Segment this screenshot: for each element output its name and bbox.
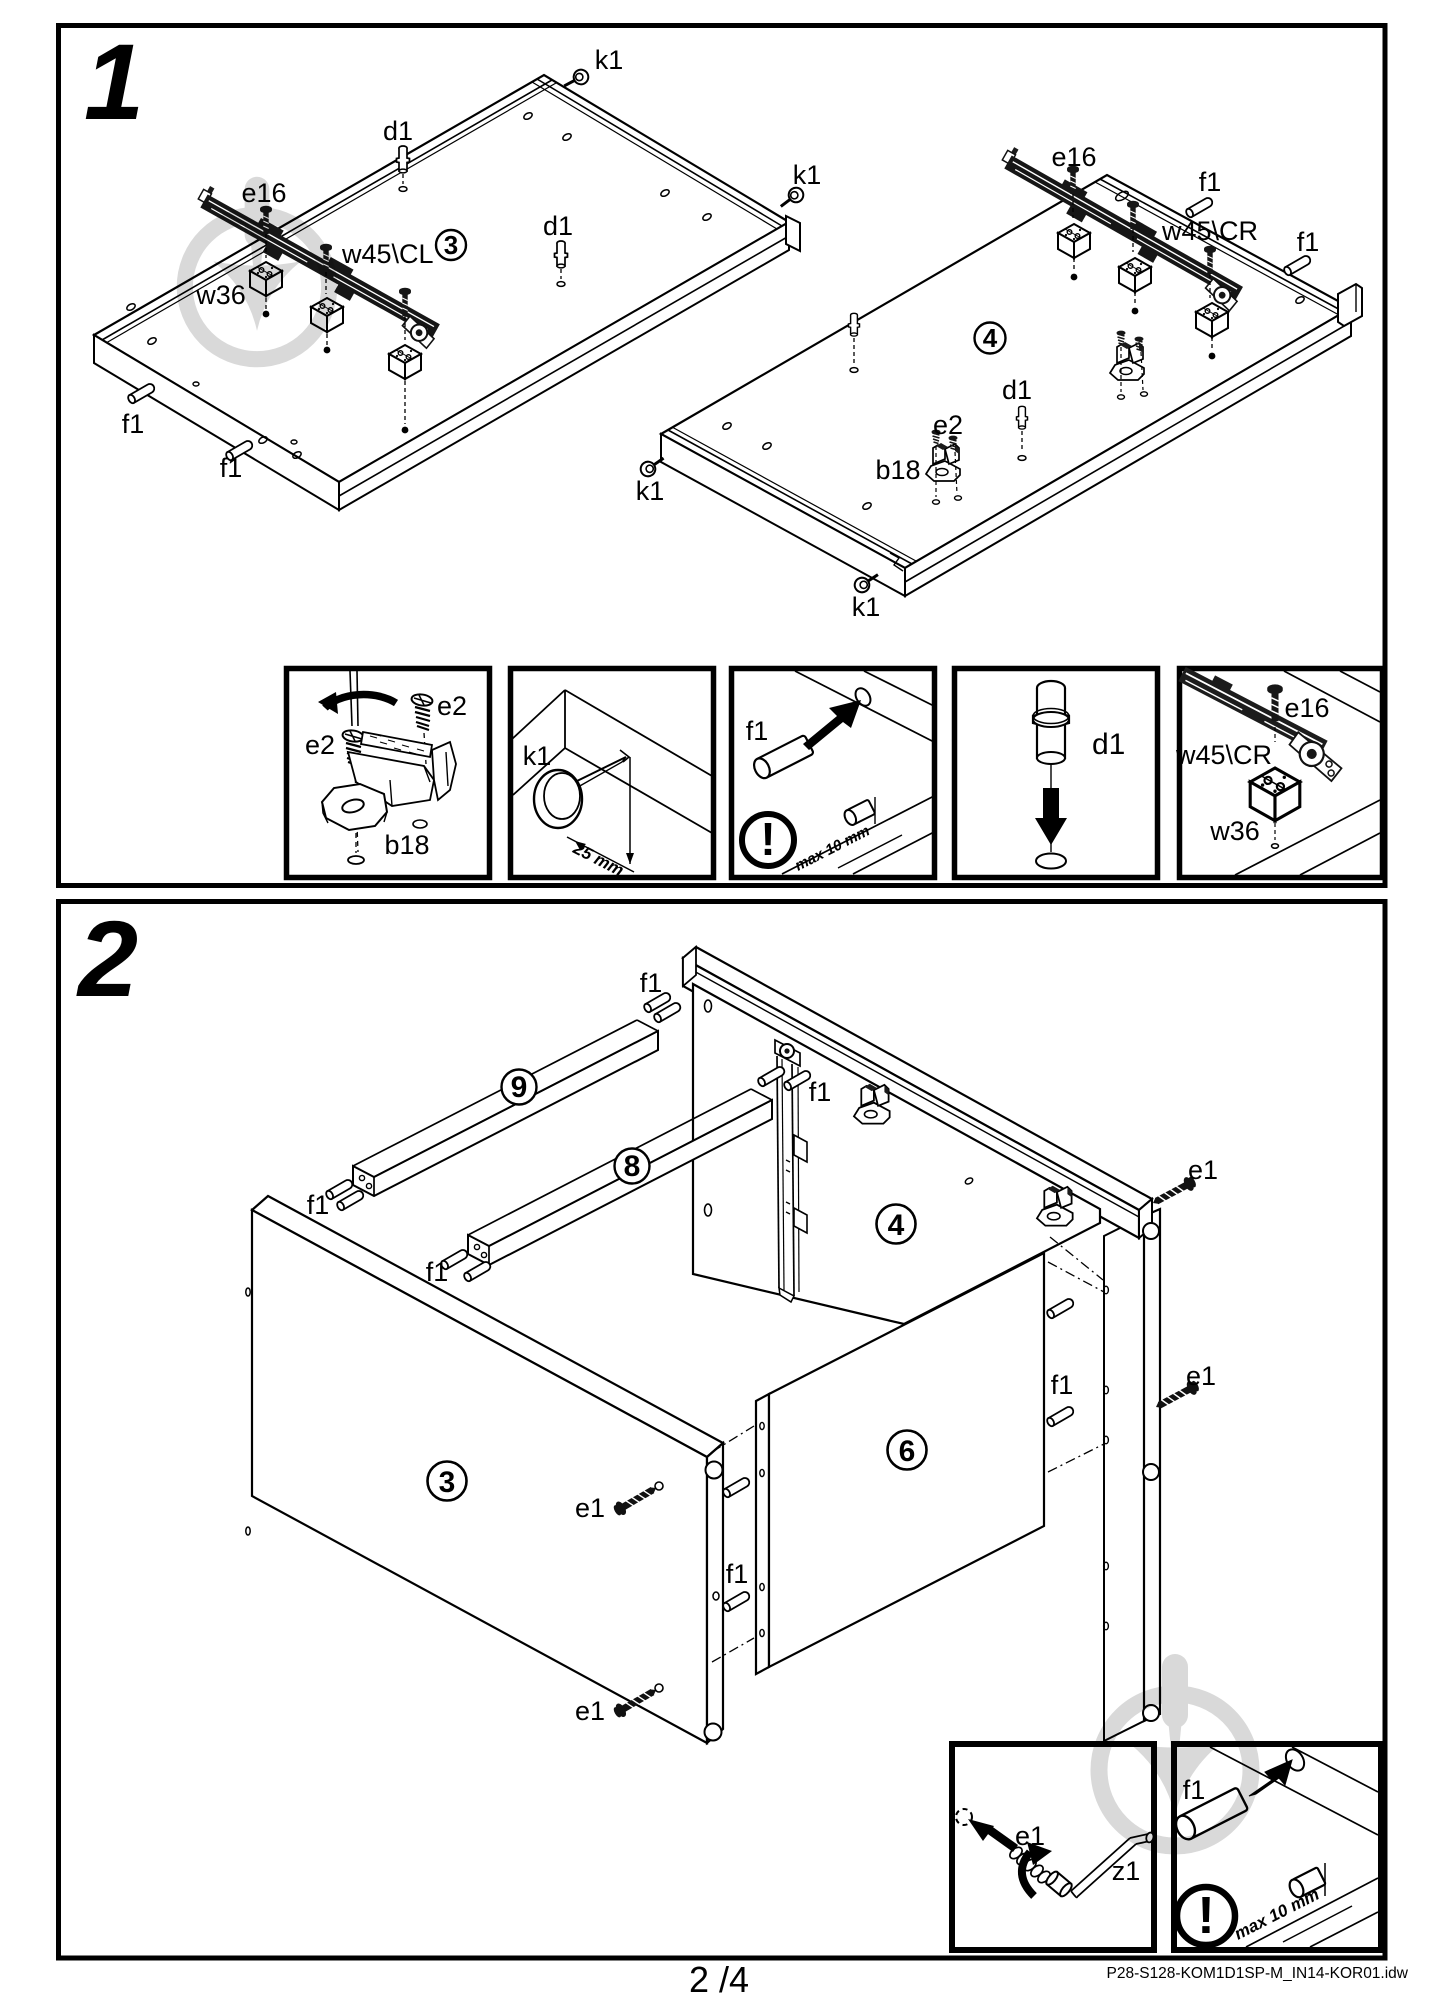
- svg-text:2 /4: 2 /4: [689, 1959, 749, 2000]
- svg-text:e2: e2: [437, 691, 467, 721]
- svg-text:2: 2: [76, 898, 138, 1019]
- svg-text:9: 9: [511, 1071, 528, 1104]
- svg-text:e1: e1: [1186, 1361, 1216, 1391]
- svg-text:!: !: [760, 813, 775, 865]
- svg-text:f1: f1: [1297, 227, 1320, 257]
- svg-text:f1: f1: [307, 1190, 330, 1220]
- svg-text:w36: w36: [1209, 816, 1260, 846]
- svg-text:f1: f1: [640, 968, 663, 998]
- svg-text:e1: e1: [1188, 1155, 1218, 1185]
- svg-text:e2: e2: [933, 410, 963, 440]
- svg-text:8: 8: [624, 1150, 641, 1183]
- svg-text:k1: k1: [793, 160, 822, 190]
- svg-text:d1: d1: [1092, 728, 1125, 761]
- svg-text:d1: d1: [543, 211, 573, 241]
- svg-text:1: 1: [84, 21, 144, 142]
- svg-text:e16: e16: [1284, 693, 1329, 723]
- svg-text:w45\CR: w45\CR: [1161, 216, 1258, 246]
- svg-text:!: !: [1197, 1887, 1214, 1945]
- svg-text:k1: k1: [852, 592, 881, 622]
- svg-text:f1: f1: [726, 1559, 749, 1589]
- svg-text:4: 4: [983, 323, 998, 353]
- svg-text:f1: f1: [746, 716, 769, 746]
- svg-text:3: 3: [439, 1466, 456, 1499]
- svg-text:e16: e16: [1051, 142, 1096, 172]
- svg-text:k1: k1: [595, 45, 624, 75]
- svg-text:e1: e1: [575, 1696, 605, 1726]
- svg-text:b18: b18: [384, 830, 429, 860]
- svg-text:k1: k1: [636, 476, 665, 506]
- svg-text:4: 4: [888, 1209, 905, 1242]
- svg-text:e1: e1: [575, 1493, 605, 1523]
- svg-text:d1: d1: [1002, 375, 1032, 405]
- svg-text:f1: f1: [122, 409, 145, 439]
- svg-text:e1: e1: [1015, 1821, 1045, 1851]
- svg-text:w45\CR: w45\CR: [1175, 740, 1272, 770]
- svg-text:k1: k1: [523, 741, 552, 771]
- svg-text:f1: f1: [809, 1077, 832, 1107]
- svg-text:f1: f1: [220, 453, 243, 483]
- svg-text:f1: f1: [1199, 167, 1222, 197]
- svg-text:b18: b18: [875, 455, 920, 485]
- svg-text:6: 6: [899, 1435, 916, 1468]
- svg-text:P28-S128-KOM1D1SP-M_IN14-KOR01: P28-S128-KOM1D1SP-M_IN14-KOR01.idw: [1106, 1965, 1408, 1982]
- svg-text:z1: z1: [1112, 1856, 1141, 1886]
- svg-text:3: 3: [444, 230, 458, 260]
- svg-text:e2: e2: [305, 730, 335, 760]
- svg-text:d1: d1: [383, 116, 413, 146]
- svg-text:w45\CL: w45\CL: [341, 239, 434, 269]
- svg-text:f1: f1: [1051, 1370, 1074, 1400]
